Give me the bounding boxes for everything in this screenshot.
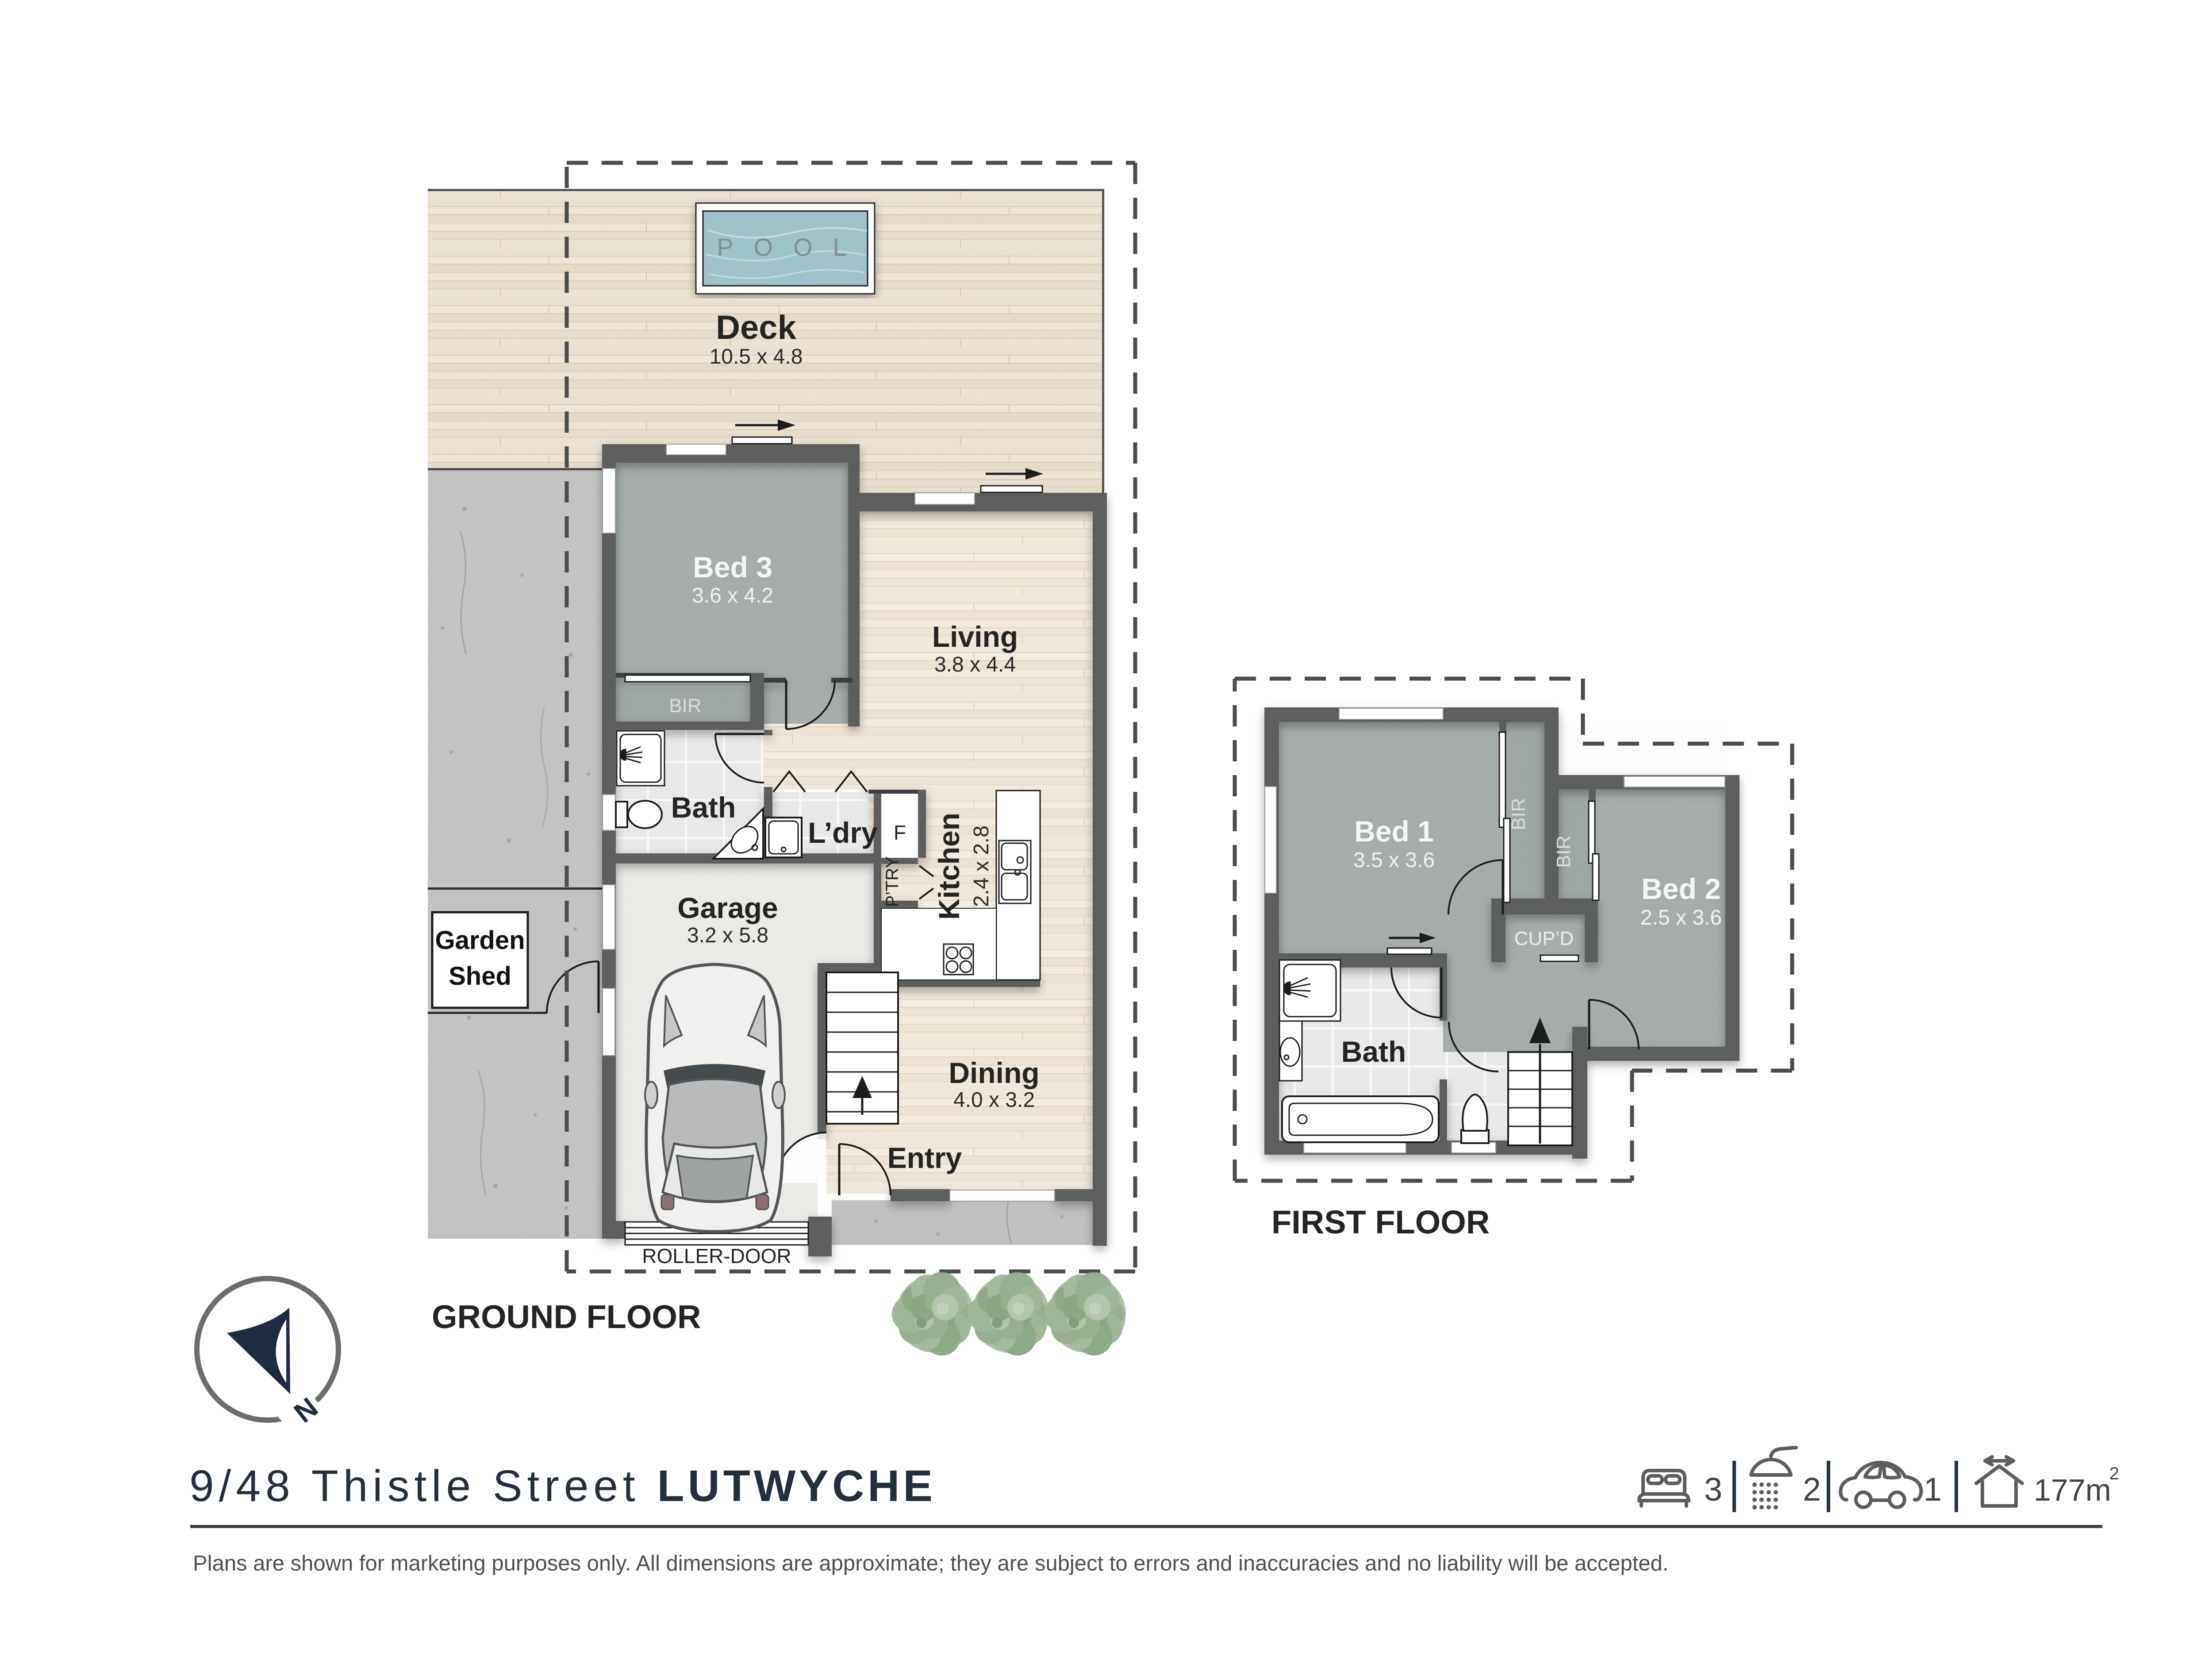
svg-text:4.0 x 3.2: 4.0 x 3.2 bbox=[953, 1088, 1035, 1112]
svg-text:F: F bbox=[894, 821, 906, 844]
svg-text:Plans are shown for marketing: Plans are shown for marketing purposes o… bbox=[193, 1551, 1669, 1575]
svg-text:177m: 177m bbox=[2034, 1473, 2111, 1507]
svg-text:2: 2 bbox=[2109, 1464, 2119, 1483]
svg-text:ROLLER-DOOR: ROLLER-DOOR bbox=[642, 1244, 791, 1267]
svg-text:Garden: Garden bbox=[435, 926, 525, 955]
svg-text:P’TRY: P’TRY bbox=[883, 856, 902, 907]
svg-text:Bed 3: Bed 3 bbox=[693, 551, 772, 584]
svg-text:BIR: BIR bbox=[669, 695, 701, 717]
svg-text:L’dry: L’dry bbox=[808, 816, 878, 849]
svg-text:Living: Living bbox=[932, 620, 1018, 653]
svg-text:3.2 x 5.8: 3.2 x 5.8 bbox=[687, 924, 768, 947]
svg-text:FIRST FLOOR: FIRST FLOOR bbox=[1271, 1204, 1490, 1240]
svg-text:POOL: POOL bbox=[717, 233, 867, 261]
svg-text:3.5 x 3.6: 3.5 x 3.6 bbox=[1353, 849, 1435, 872]
svg-text:3.8 x 4.4: 3.8 x 4.4 bbox=[934, 653, 1016, 676]
svg-text:2: 2 bbox=[1803, 1471, 1821, 1508]
svg-text:Entry: Entry bbox=[887, 1141, 962, 1174]
svg-text:3.6 x 4.2: 3.6 x 4.2 bbox=[692, 584, 773, 607]
svg-text:2.4 x 2.8: 2.4 x 2.8 bbox=[970, 826, 993, 907]
svg-text:Bath: Bath bbox=[671, 791, 736, 824]
svg-text:1: 1 bbox=[1924, 1471, 1942, 1508]
svg-text:10.5 x 4.8: 10.5 x 4.8 bbox=[710, 345, 803, 369]
svg-text:Deck: Deck bbox=[716, 309, 796, 346]
svg-text:Shed: Shed bbox=[449, 962, 511, 991]
svg-text:Kitchen: Kitchen bbox=[933, 813, 965, 920]
svg-text:BIR: BIR bbox=[1553, 835, 1575, 868]
svg-text:2.5 x 3.6: 2.5 x 3.6 bbox=[1640, 906, 1722, 929]
svg-text:BIR: BIR bbox=[1508, 798, 1529, 830]
svg-text:9/48 Thistle Street LUTWYCHE: 9/48 Thistle Street LUTWYCHE bbox=[189, 1461, 936, 1511]
svg-text:Bed 2: Bed 2 bbox=[1641, 872, 1721, 905]
svg-text:GROUND FLOOR: GROUND FLOOR bbox=[432, 1298, 701, 1335]
svg-text:Bed 1: Bed 1 bbox=[1354, 815, 1434, 848]
svg-text:Bath: Bath bbox=[1341, 1035, 1406, 1068]
svg-text:Garage: Garage bbox=[677, 891, 778, 924]
svg-text:Dining: Dining bbox=[949, 1056, 1039, 1089]
svg-text:3: 3 bbox=[1704, 1471, 1722, 1508]
svg-text:CUP’D: CUP’D bbox=[1514, 928, 1574, 949]
